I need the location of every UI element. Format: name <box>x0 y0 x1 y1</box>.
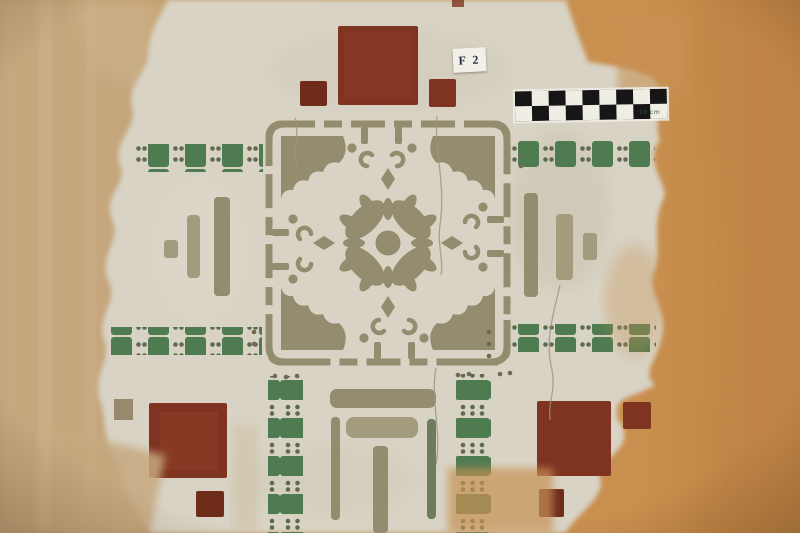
vignette <box>0 0 800 533</box>
find-number-text: F 2 <box>458 52 481 68</box>
find-number-card: F 2 <box>452 47 486 73</box>
scale-caption: 10 cm <box>639 110 665 116</box>
wall-painting-photo: F 2 10 cm <box>0 0 800 533</box>
painting-artwork <box>0 0 800 533</box>
